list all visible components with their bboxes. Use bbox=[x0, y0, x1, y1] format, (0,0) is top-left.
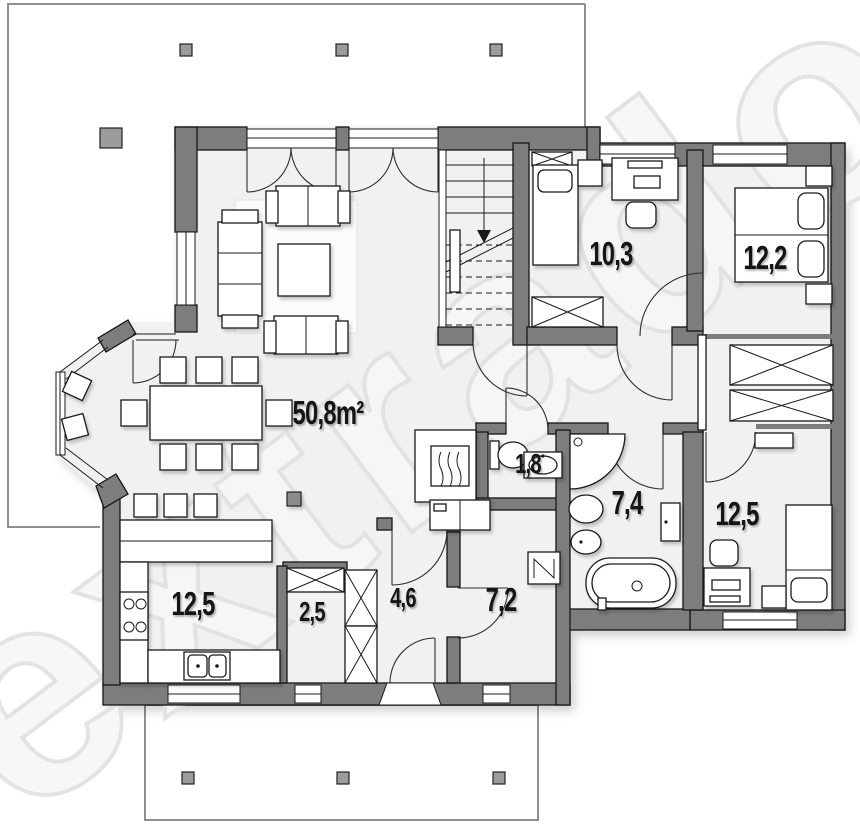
desk-right bbox=[704, 568, 750, 606]
label-bedroom-right-bottom: 12,5 bbox=[715, 495, 758, 533]
bath-cabinet bbox=[661, 503, 680, 541]
window-utility bbox=[483, 685, 510, 703]
label-bedroom-right-top: 12,2 bbox=[743, 239, 786, 277]
shelf-bedroom-right bbox=[755, 433, 793, 448]
nightstand-right bbox=[762, 586, 786, 608]
label-bathroom: 7,4 bbox=[612, 484, 643, 522]
label-wc: 1,8 bbox=[515, 448, 541, 480]
french-doors bbox=[247, 129, 438, 192]
chair-right bbox=[710, 540, 738, 566]
floor-plan: extradom bbox=[0, 0, 860, 827]
window-living-west bbox=[177, 232, 195, 305]
bidet bbox=[571, 530, 601, 554]
watermark-text: extradom bbox=[0, 0, 860, 827]
sofa-top bbox=[266, 186, 350, 226]
door-entrance bbox=[379, 638, 441, 705]
label-living-area: 50,8m² bbox=[293, 394, 364, 432]
closet-corridor-lower bbox=[730, 390, 833, 421]
washing-machine bbox=[528, 552, 560, 584]
label-hall-entrance: 4,6 bbox=[390, 582, 416, 614]
bed-single-right bbox=[786, 505, 832, 610]
label-utility-room: 7,2 bbox=[486, 581, 517, 619]
bathtub bbox=[586, 558, 676, 610]
bay-stools bbox=[62, 371, 92, 440]
door-bedroom-right-bottom bbox=[706, 432, 756, 482]
label-kitchen: 12,5 bbox=[171, 585, 214, 623]
label-bedroom-top: 10,3 bbox=[589, 235, 632, 273]
window-bedroom-right-bottom bbox=[723, 612, 797, 629]
bath-washbasin bbox=[569, 495, 603, 523]
label-hall-small: 2,5 bbox=[299, 596, 325, 628]
